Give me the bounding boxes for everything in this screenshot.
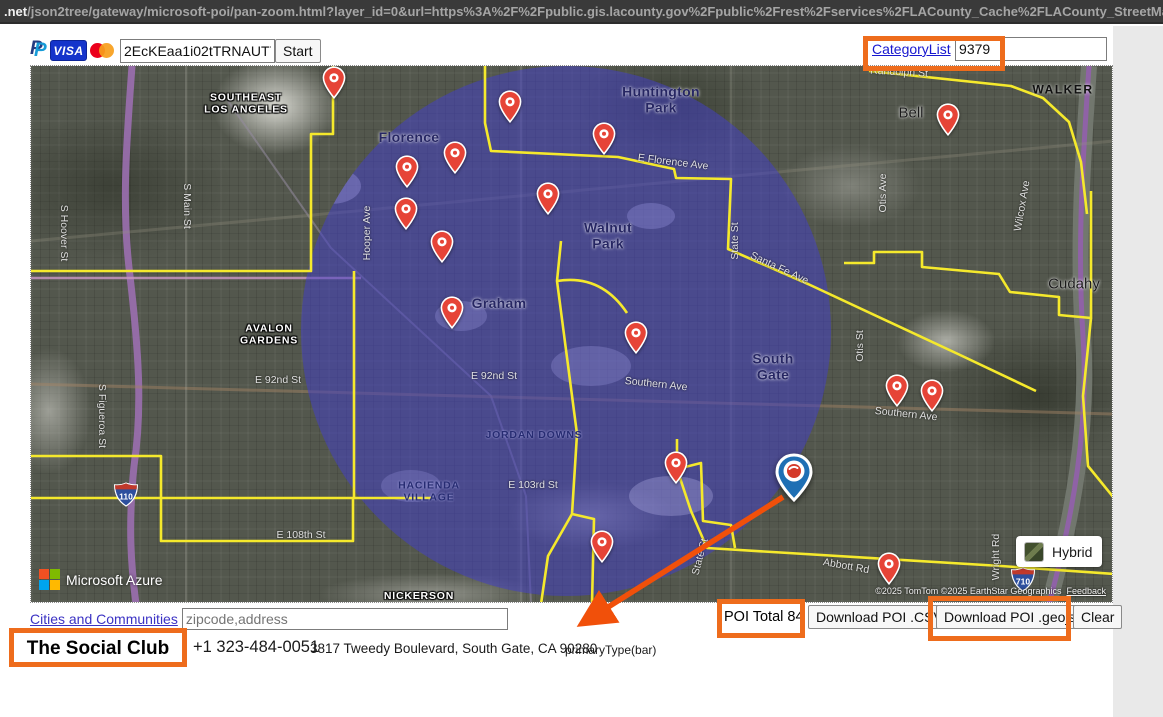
poi-pin[interactable] <box>321 66 347 100</box>
poi-pin[interactable] <box>535 182 561 216</box>
map-pins-layer: 110710 <box>31 66 1112 602</box>
poi-phone: +1 323-484-0051 <box>193 638 319 657</box>
map-style-thumbnail-icon <box>1024 542 1044 562</box>
poi-pin[interactable] <box>442 141 468 175</box>
clear-button[interactable]: Clear <box>1073 605 1122 629</box>
page: .net/json2tree/gateway/microsoft-poi/pan… <box>0 0 1163 717</box>
poi-pin[interactable] <box>439 296 465 330</box>
category-id-input[interactable] <box>955 37 1107 61</box>
poi-primary-type: primaryType(bar) <box>565 643 656 657</box>
map-copyright: ©2025 TomTom ©2025 EarthStar Geographics… <box>875 586 1106 596</box>
copyright-text: ©2025 TomTom ©2025 EarthStar Geographics <box>875 586 1061 596</box>
poi-details: The Social Club +1 323-484-0051 3817 Twe… <box>0 632 1113 666</box>
url-bar[interactable]: .net/json2tree/gateway/microsoft-poi/pan… <box>0 0 1163 24</box>
url-host: .net <box>4 4 27 19</box>
svg-text:710: 710 <box>1016 577 1030 587</box>
poi-pin[interactable] <box>623 321 649 355</box>
poi-pin[interactable] <box>919 379 945 413</box>
svg-text:110: 110 <box>119 492 133 502</box>
paypal-icon: PP <box>30 40 47 61</box>
feedback-link[interactable]: Feedback <box>1066 586 1106 596</box>
poi-pin[interactable] <box>429 230 455 264</box>
microsoft-logo-icon <box>39 569 60 590</box>
toolbar: PP VISA Start <box>30 37 321 64</box>
cities-communities-link[interactable]: Cities and Communities <box>30 611 178 627</box>
azure-logo: Microsoft Azure <box>39 569 162 590</box>
category-area: CategoryList <box>872 37 1107 61</box>
poi-pin[interactable] <box>589 530 615 564</box>
poi-pin[interactable] <box>497 90 523 124</box>
poi-pin[interactable] <box>663 451 689 485</box>
map-canvas[interactable]: FlorenceHuntington ParkWalnut ParkGraham… <box>30 65 1113 603</box>
search-input[interactable] <box>182 608 508 630</box>
azure-brand: Microsoft Azure <box>66 572 162 588</box>
token-input[interactable] <box>120 39 275 63</box>
poi-pin[interactable] <box>884 374 910 408</box>
poi-pin[interactable] <box>876 552 902 586</box>
start-button[interactable]: Start <box>275 39 321 63</box>
hybrid-button[interactable]: Hybrid <box>1016 536 1102 567</box>
categorylist-link[interactable]: CategoryList <box>872 41 951 57</box>
url-path: /json2tree/gateway/microsoft-poi/pan-zoo… <box>27 4 1163 19</box>
poi-pin[interactable] <box>591 122 617 156</box>
bottom-bar: Cities and Communities <box>30 606 508 632</box>
poi-total: POI Total 84 <box>724 609 804 625</box>
selected-poi-marker[interactable] <box>774 453 814 503</box>
poi-pin[interactable] <box>935 103 961 137</box>
poi-address: 3817 Tweedy Boulevard, South Gate, CA 90… <box>310 641 597 656</box>
interstate-110-shield-icon: 110 <box>113 482 139 507</box>
visa-icon: VISA <box>50 40 87 61</box>
poi-pin[interactable] <box>394 155 420 189</box>
mastercard-icon <box>90 42 117 60</box>
poi-pin[interactable] <box>393 197 419 231</box>
poi-name: The Social Club <box>12 632 184 666</box>
download-csv-button[interactable]: Download POI .CSV <box>808 605 951 629</box>
hybrid-label: Hybrid <box>1052 544 1092 560</box>
